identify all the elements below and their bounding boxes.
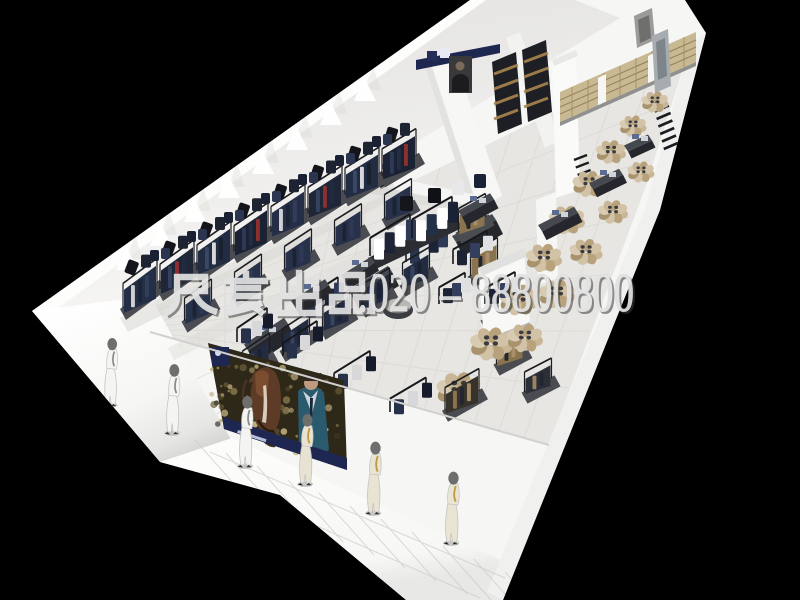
svg-text::020 – 88800800: :020 – 88800800 xyxy=(357,262,634,323)
